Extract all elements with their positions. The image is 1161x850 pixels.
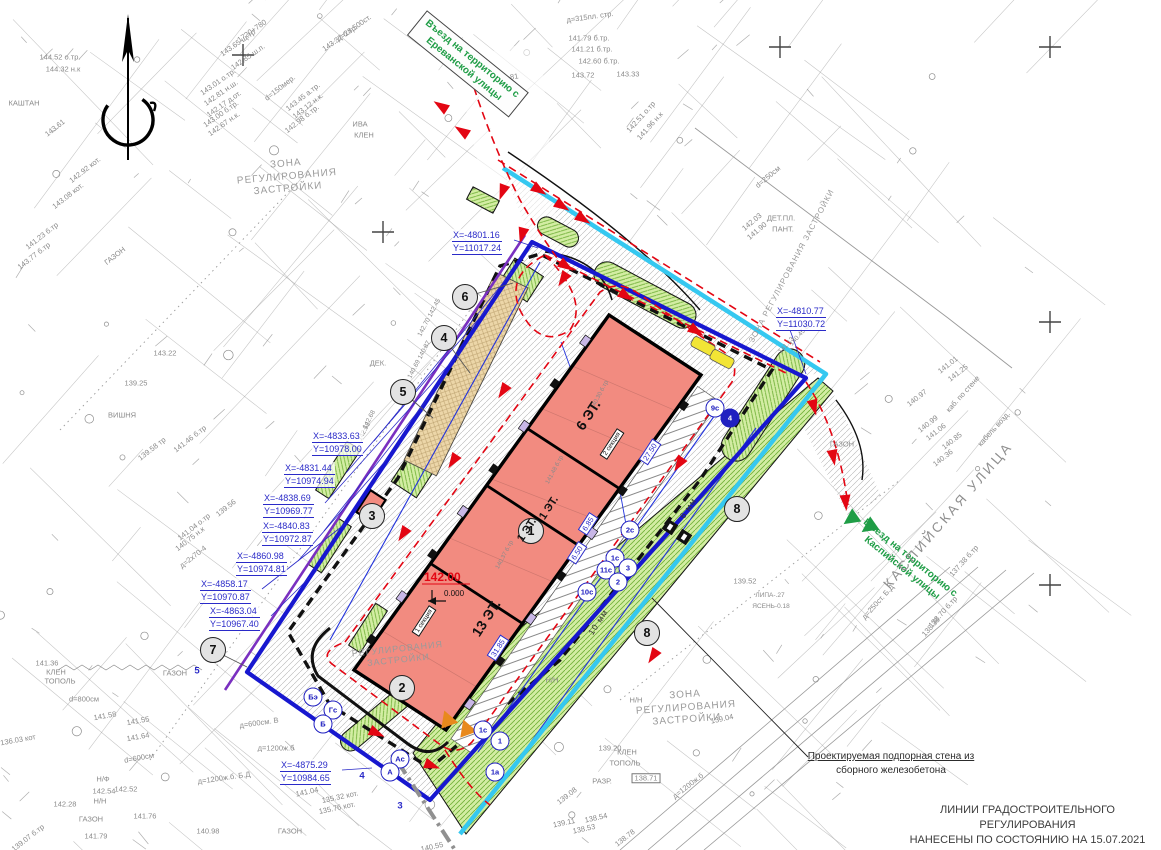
tree-symbol xyxy=(813,676,819,682)
tree-symbol xyxy=(693,750,699,756)
tree-symbol xyxy=(269,146,278,155)
tree-symbol xyxy=(229,229,236,236)
note-line: НАНЕСЕНЫ ПО СОСТОЯНИЮ НА 15.07.2021 Г. xyxy=(905,833,1150,850)
tree-symbol xyxy=(554,742,563,751)
site-plan-drawing xyxy=(0,0,1161,850)
tree-symbol xyxy=(85,414,94,423)
tree-symbol xyxy=(141,632,148,639)
tree-symbol xyxy=(317,14,322,19)
north-arrow xyxy=(93,14,163,160)
tree-symbol xyxy=(104,322,108,326)
tree-symbol xyxy=(47,589,53,595)
tree-symbol xyxy=(161,773,169,781)
note-line: ЛИНИИ ГРАДОСТРОИТЕЛЬНОГО РЕГУЛИРОВАНИЯ xyxy=(905,803,1150,833)
tree-symbol xyxy=(72,727,81,736)
route-arrowhead xyxy=(644,647,662,666)
tree-symbol xyxy=(53,170,60,177)
tree-symbol xyxy=(803,719,808,724)
site-plan: 144.52 о.тр.144.32 н.кКАШТАН143.61142.92… xyxy=(0,0,1161,850)
tree-symbol xyxy=(910,148,916,154)
route-arrowhead xyxy=(452,122,471,140)
tree-symbol xyxy=(677,137,683,143)
tree-symbol xyxy=(929,74,935,80)
tree-symbol xyxy=(604,686,611,693)
tree-symbol xyxy=(815,512,823,520)
tree-symbol xyxy=(1015,410,1020,415)
tree-symbol xyxy=(134,57,140,63)
retaining-wall-note: Проектируемая подпорная стена из сборног… xyxy=(806,750,976,778)
tree-symbol xyxy=(224,350,234,360)
tree-symbol xyxy=(120,455,125,460)
tree-symbol xyxy=(445,115,452,122)
tree-symbol xyxy=(20,391,24,395)
regulation-lines-note: ЛИНИИ ГРАДОСТРОИТЕЛЬНОГО РЕГУЛИРОВАНИЯ Н… xyxy=(905,803,1150,850)
tree-symbol xyxy=(0,611,4,619)
note-line: Проектируемая подпорная стена из xyxy=(806,750,976,764)
tree-symbol xyxy=(569,812,575,818)
tree-symbol xyxy=(391,321,396,326)
note-leader xyxy=(652,598,808,757)
tree-symbol xyxy=(885,395,892,402)
tree-symbol xyxy=(750,792,754,796)
route-arrowhead xyxy=(431,97,450,115)
note-line: сборного железобетона xyxy=(806,764,976,778)
